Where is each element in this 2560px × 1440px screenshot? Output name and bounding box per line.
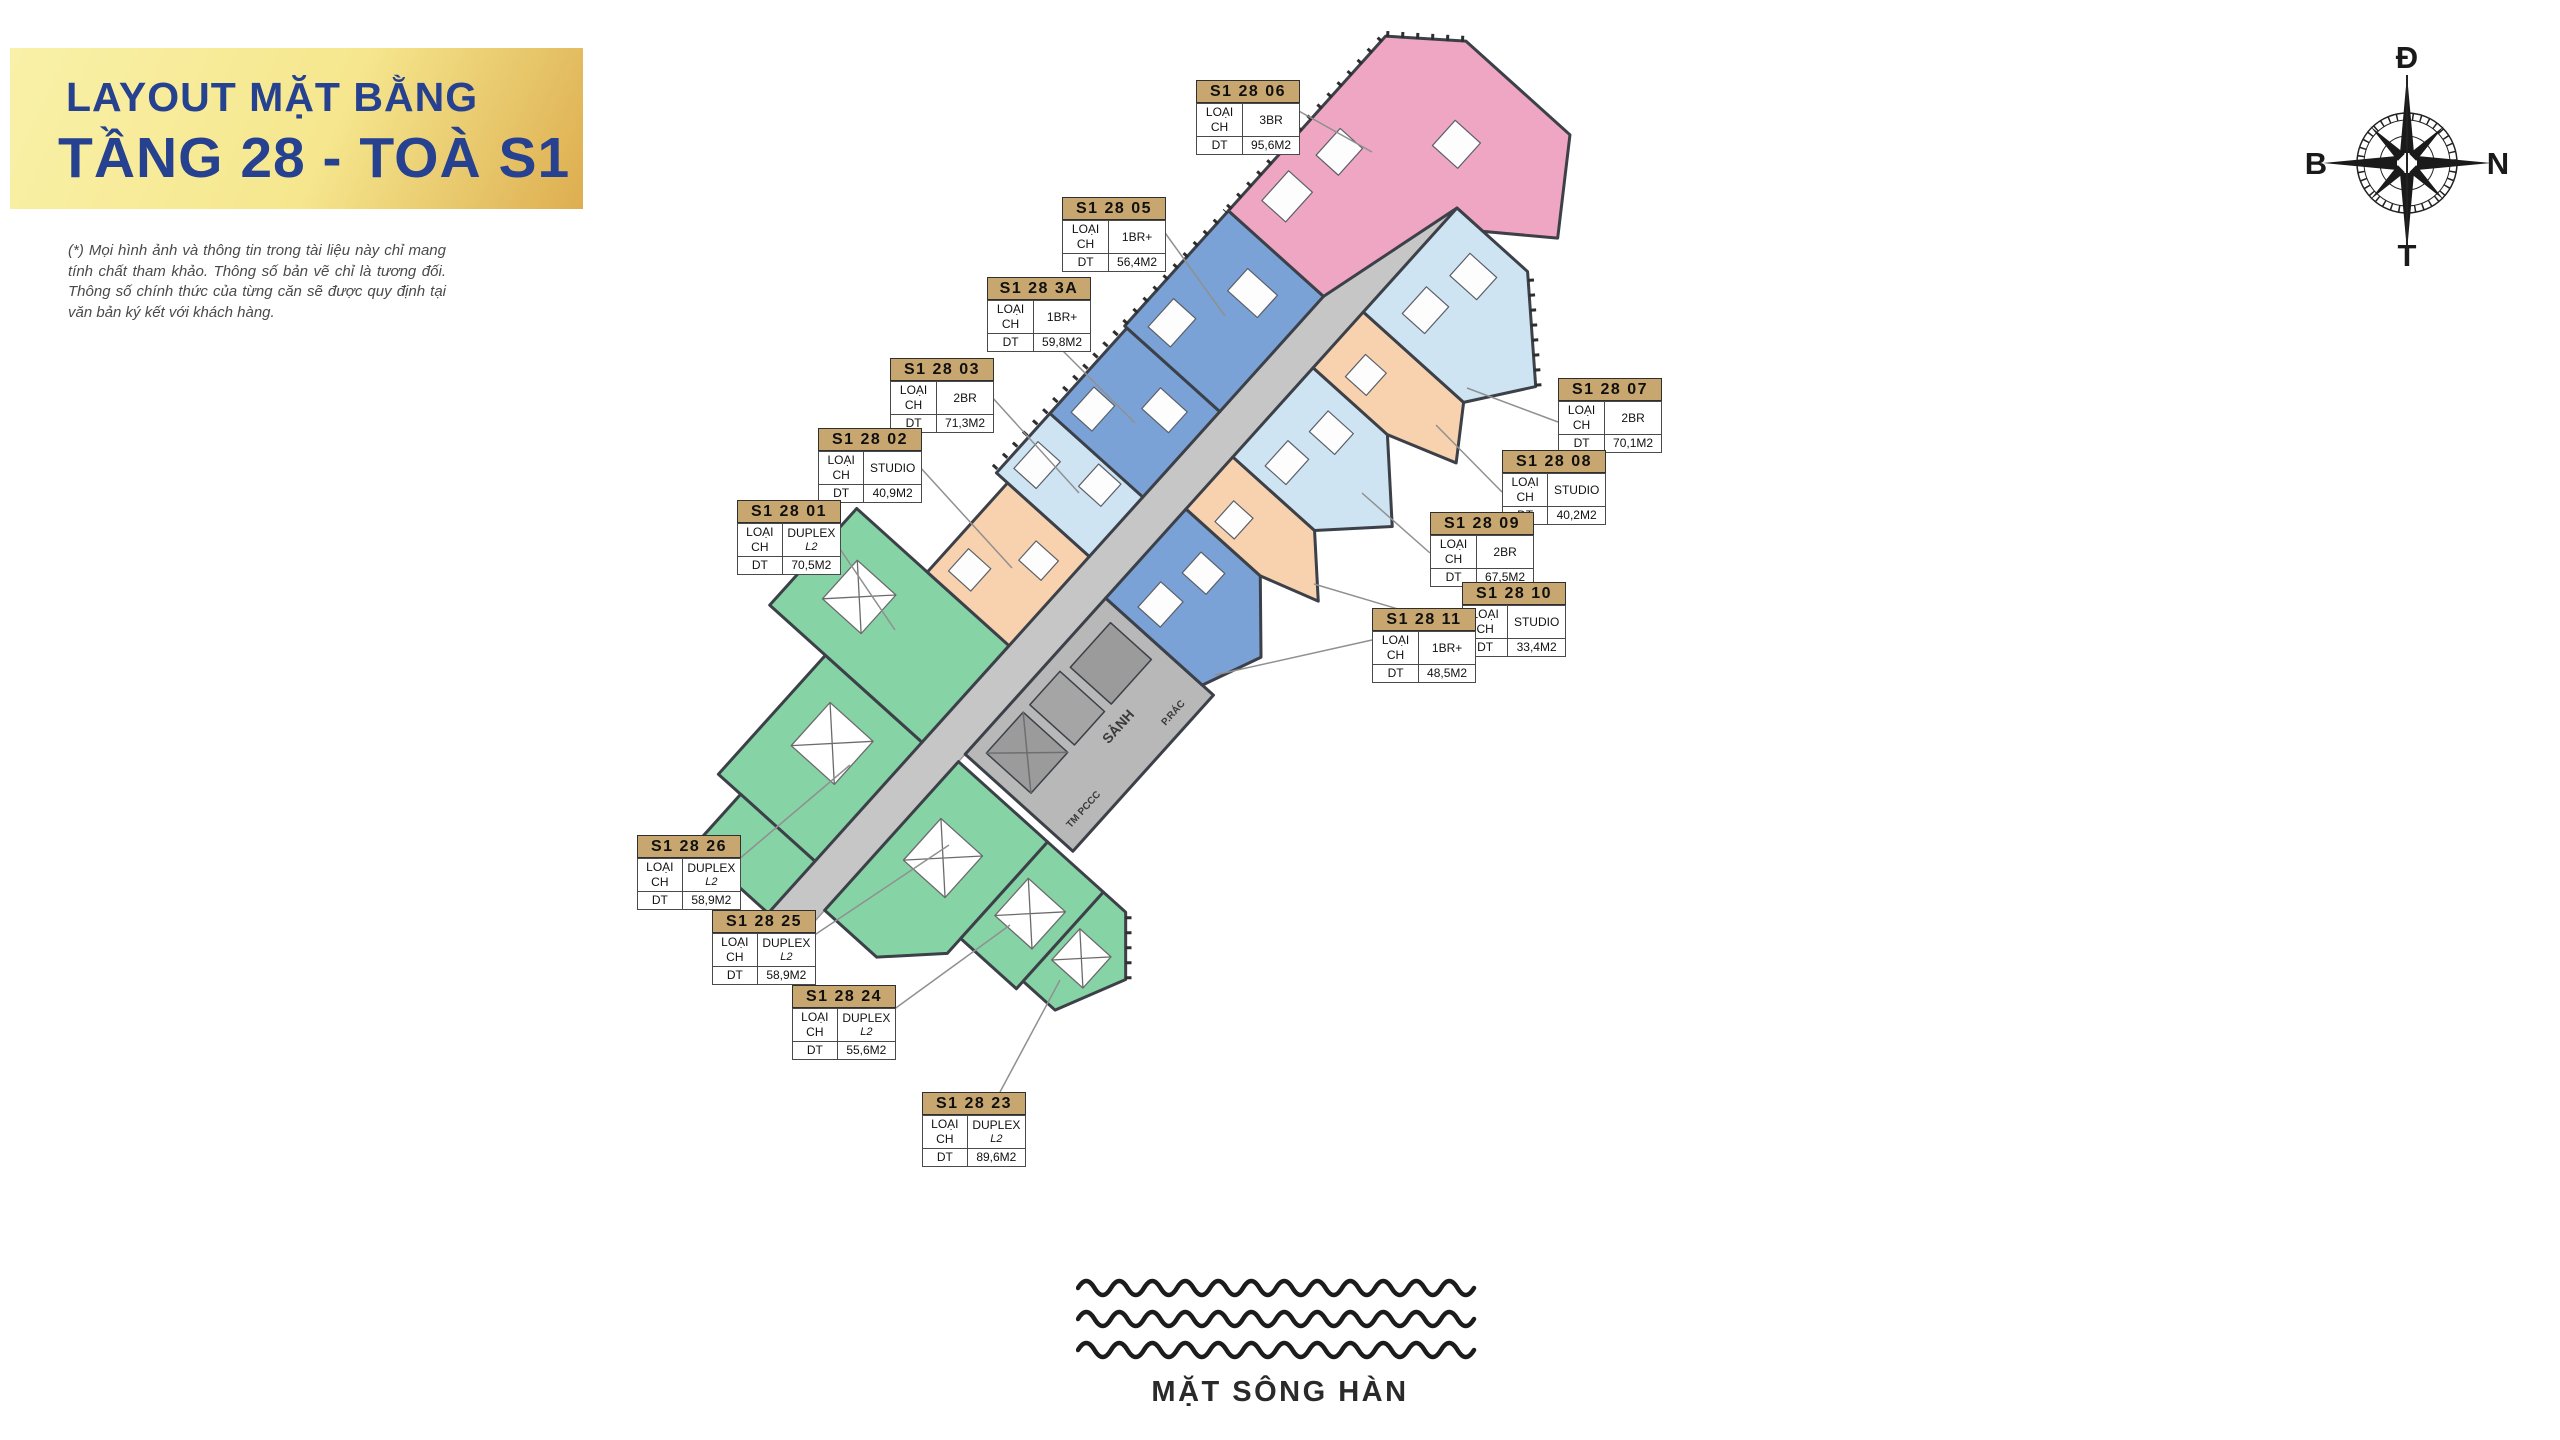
unit-id: S1 28 08 bbox=[1502, 450, 1606, 473]
unit-label: S1 28 23 LOẠI CH DUPLEXL2 DT 89,6M2 bbox=[922, 1092, 1026, 1167]
unit-type-value: STUDIO bbox=[1508, 606, 1566, 639]
unit-type-key: LOẠI CH bbox=[713, 934, 758, 967]
unit-type-value: DUPLEXL2 bbox=[967, 1116, 1025, 1149]
unit-label: S1 28 10 LOẠI CH STUDIO DT 33,4M2 bbox=[1462, 582, 1566, 657]
unit-label: S1 28 03 LOẠI CH 2BR DT 71,3M2 bbox=[890, 358, 994, 433]
unit-type-value: 1BR+ bbox=[1109, 221, 1166, 254]
leader-line bbox=[1000, 980, 1060, 1092]
river-waves bbox=[1076, 1272, 1478, 1372]
unit-type-value: DUPLEXL2 bbox=[837, 1009, 895, 1042]
unit-type-value: 1BR+ bbox=[1034, 301, 1091, 334]
unit-type-key: LOẠI CH bbox=[819, 452, 864, 485]
unit-type-key: LOẠI CH bbox=[1503, 474, 1548, 507]
unit-type-value: 2BR bbox=[1477, 536, 1534, 569]
unit-area-value: 48,5M2 bbox=[1419, 665, 1476, 683]
unit-type-value: 3BR bbox=[1243, 104, 1300, 137]
unit-label: S1 28 06 LOẠI CH 3BR DT 95,6M2 bbox=[1196, 80, 1300, 155]
unit-id: S1 28 02 bbox=[818, 428, 922, 451]
unit-type-value: STUDIO bbox=[864, 452, 922, 485]
unit-area-value: 58,9M2 bbox=[757, 967, 815, 985]
compass-west-label: B bbox=[2305, 146, 2327, 181]
unit-area-value: 70,1M2 bbox=[1605, 435, 1662, 453]
unit-area-value: 55,6M2 bbox=[837, 1042, 895, 1060]
unit-area-key: DT bbox=[793, 1042, 838, 1060]
unit-area-value: 33,4M2 bbox=[1508, 639, 1566, 657]
unit-area-key: DT bbox=[713, 967, 758, 985]
unit-area-key: DT bbox=[738, 557, 783, 575]
unit-area-key: DT bbox=[988, 334, 1034, 352]
unit-label: S1 28 05 LOẠI CH 1BR+ DT 56,4M2 bbox=[1062, 197, 1166, 272]
unit-area-value: 40,2M2 bbox=[1548, 507, 1606, 525]
unit-id: S1 28 11 bbox=[1372, 608, 1476, 631]
unit-label: S1 28 24 LOẠI CH DUPLEXL2 DT 55,6M2 bbox=[792, 985, 896, 1060]
unit-type-key: LOẠI CH bbox=[988, 301, 1034, 334]
unit-type-key: LOẠI CH bbox=[1063, 221, 1109, 254]
unit-type-key: LOẠI CH bbox=[923, 1116, 968, 1149]
unit-id: S1 28 06 bbox=[1196, 80, 1300, 103]
unit-id: S1 28 09 bbox=[1430, 512, 1534, 535]
compass: Đ B N T bbox=[2302, 38, 2512, 268]
unit-area-value: 71,3M2 bbox=[937, 415, 994, 433]
unit-area-key: DT bbox=[1063, 254, 1109, 272]
unit-type-key: LOẠI CH bbox=[1373, 632, 1419, 665]
unit-id: S1 28 03 bbox=[890, 358, 994, 381]
unit-label: S1 28 3A LOẠI CH 1BR+ DT 59,8M2 bbox=[987, 277, 1091, 352]
unit-label: S1 28 25 LOẠI CH DUPLEXL2 DT 58,9M2 bbox=[712, 910, 816, 985]
unit-label: S1 28 11 LOẠI CH 1BR+ DT 48,5M2 bbox=[1372, 608, 1476, 683]
unit-type-key: LOẠI CH bbox=[738, 524, 783, 557]
unit-area-key: DT bbox=[1197, 137, 1243, 155]
floor-plan: SẢNH TM PCCC P.RÁC bbox=[0, 0, 2560, 1440]
wave-lines-icon bbox=[1076, 1272, 1478, 1372]
unit-type-value: 2BR bbox=[937, 382, 994, 415]
unit-type-value: 2BR bbox=[1605, 402, 1662, 435]
river-front-label: MẶT SÔNG HÀN bbox=[1120, 1376, 1440, 1409]
unit-id: S1 28 10 bbox=[1462, 582, 1566, 605]
unit-type-key: LOẠI CH bbox=[1431, 536, 1477, 569]
unit-type-value: 1BR+ bbox=[1419, 632, 1476, 665]
unit-label: S1 28 26 LOẠI CH DUPLEXL2 DT 58,9M2 bbox=[637, 835, 741, 910]
unit-id: S1 28 26 bbox=[637, 835, 741, 858]
unit-label: S1 28 02 LOẠI CH STUDIO DT 40,9M2 bbox=[818, 428, 922, 503]
compass-east-label: Đ bbox=[2396, 40, 2418, 75]
unit-type-value: STUDIO bbox=[1548, 474, 1606, 507]
unit-id: S1 28 24 bbox=[792, 985, 896, 1008]
unit-label: S1 28 07 LOẠI CH 2BR DT 70,1M2 bbox=[1558, 378, 1662, 453]
unit-area-key: DT bbox=[1373, 665, 1419, 683]
unit-type-key: LOẠI CH bbox=[638, 859, 683, 892]
unit-id: S1 28 01 bbox=[737, 500, 841, 523]
unit-area-value: 56,4M2 bbox=[1109, 254, 1166, 272]
unit-area-value: 95,6M2 bbox=[1243, 137, 1300, 155]
compass-rose-icon: Đ B N T bbox=[2302, 38, 2512, 268]
compass-north-label: N bbox=[2487, 146, 2509, 181]
unit-id: S1 28 05 bbox=[1062, 197, 1166, 220]
unit-area-value: 70,5M2 bbox=[782, 557, 840, 575]
unit-label: S1 28 01 LOẠI CH DUPLEXL2 DT 70,5M2 bbox=[737, 500, 841, 575]
unit-type-value: DUPLEXL2 bbox=[782, 524, 840, 557]
unit-area-key: DT bbox=[923, 1149, 968, 1167]
unit-area-value: 58,9M2 bbox=[682, 892, 740, 910]
unit-id: S1 28 3A bbox=[987, 277, 1091, 300]
unit-area-value: 89,6M2 bbox=[967, 1149, 1025, 1167]
unit-type-value: DUPLEXL2 bbox=[682, 859, 740, 892]
unit-type-key: LOẠI CH bbox=[1559, 402, 1605, 435]
unit-area-value: 59,8M2 bbox=[1034, 334, 1091, 352]
unit-id: S1 28 07 bbox=[1558, 378, 1662, 401]
unit-type-key: LOẠI CH bbox=[891, 382, 937, 415]
unit-id: S1 28 25 bbox=[712, 910, 816, 933]
unit-type-key: LOẠI CH bbox=[1197, 104, 1243, 137]
page: LAYOUT MẶT BẰNG TẦNG 28 - TOÀ S1 (*) Mọi… bbox=[0, 0, 2560, 1440]
unit-area-key: DT bbox=[638, 892, 683, 910]
unit-label: S1 28 09 LOẠI CH 2BR DT 67,5M2 bbox=[1430, 512, 1534, 587]
unit-type-key: LOẠI CH bbox=[793, 1009, 838, 1042]
unit-area-value: 40,9M2 bbox=[864, 485, 922, 503]
unit-id: S1 28 23 bbox=[922, 1092, 1026, 1115]
unit-type-value: DUPLEXL2 bbox=[757, 934, 815, 967]
